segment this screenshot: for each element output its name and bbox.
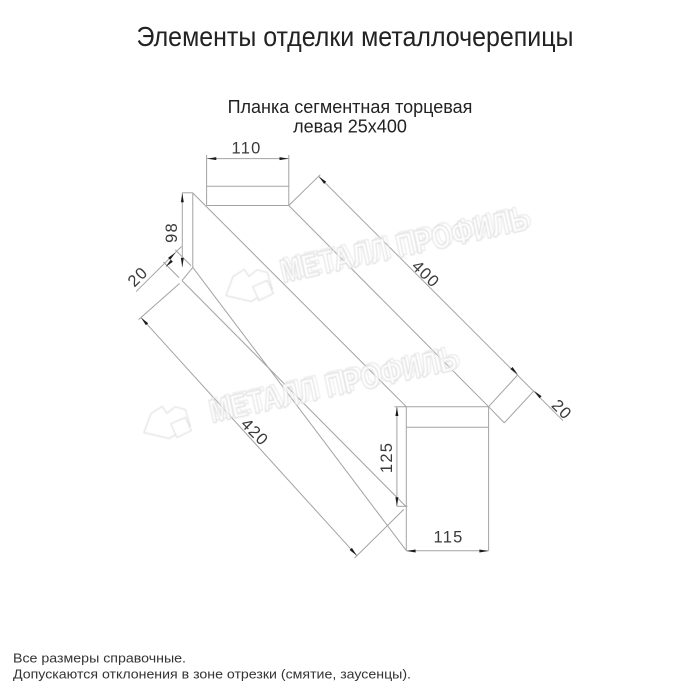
svg-text:Допускаются отклонения в зоне: Допускаются отклонения в зоне отрезки (с…	[13, 667, 411, 682]
svg-text:Элементы отделки металлочерепи: Элементы отделки металлочерепицы	[137, 21, 574, 52]
svg-text:Все размеры справочные.: Все размеры справочные.	[13, 651, 186, 666]
svg-text:левая 25х400: левая 25х400	[293, 117, 407, 137]
svg-text:Планка сегментная торцевая: Планка сегментная торцевая	[228, 97, 473, 117]
